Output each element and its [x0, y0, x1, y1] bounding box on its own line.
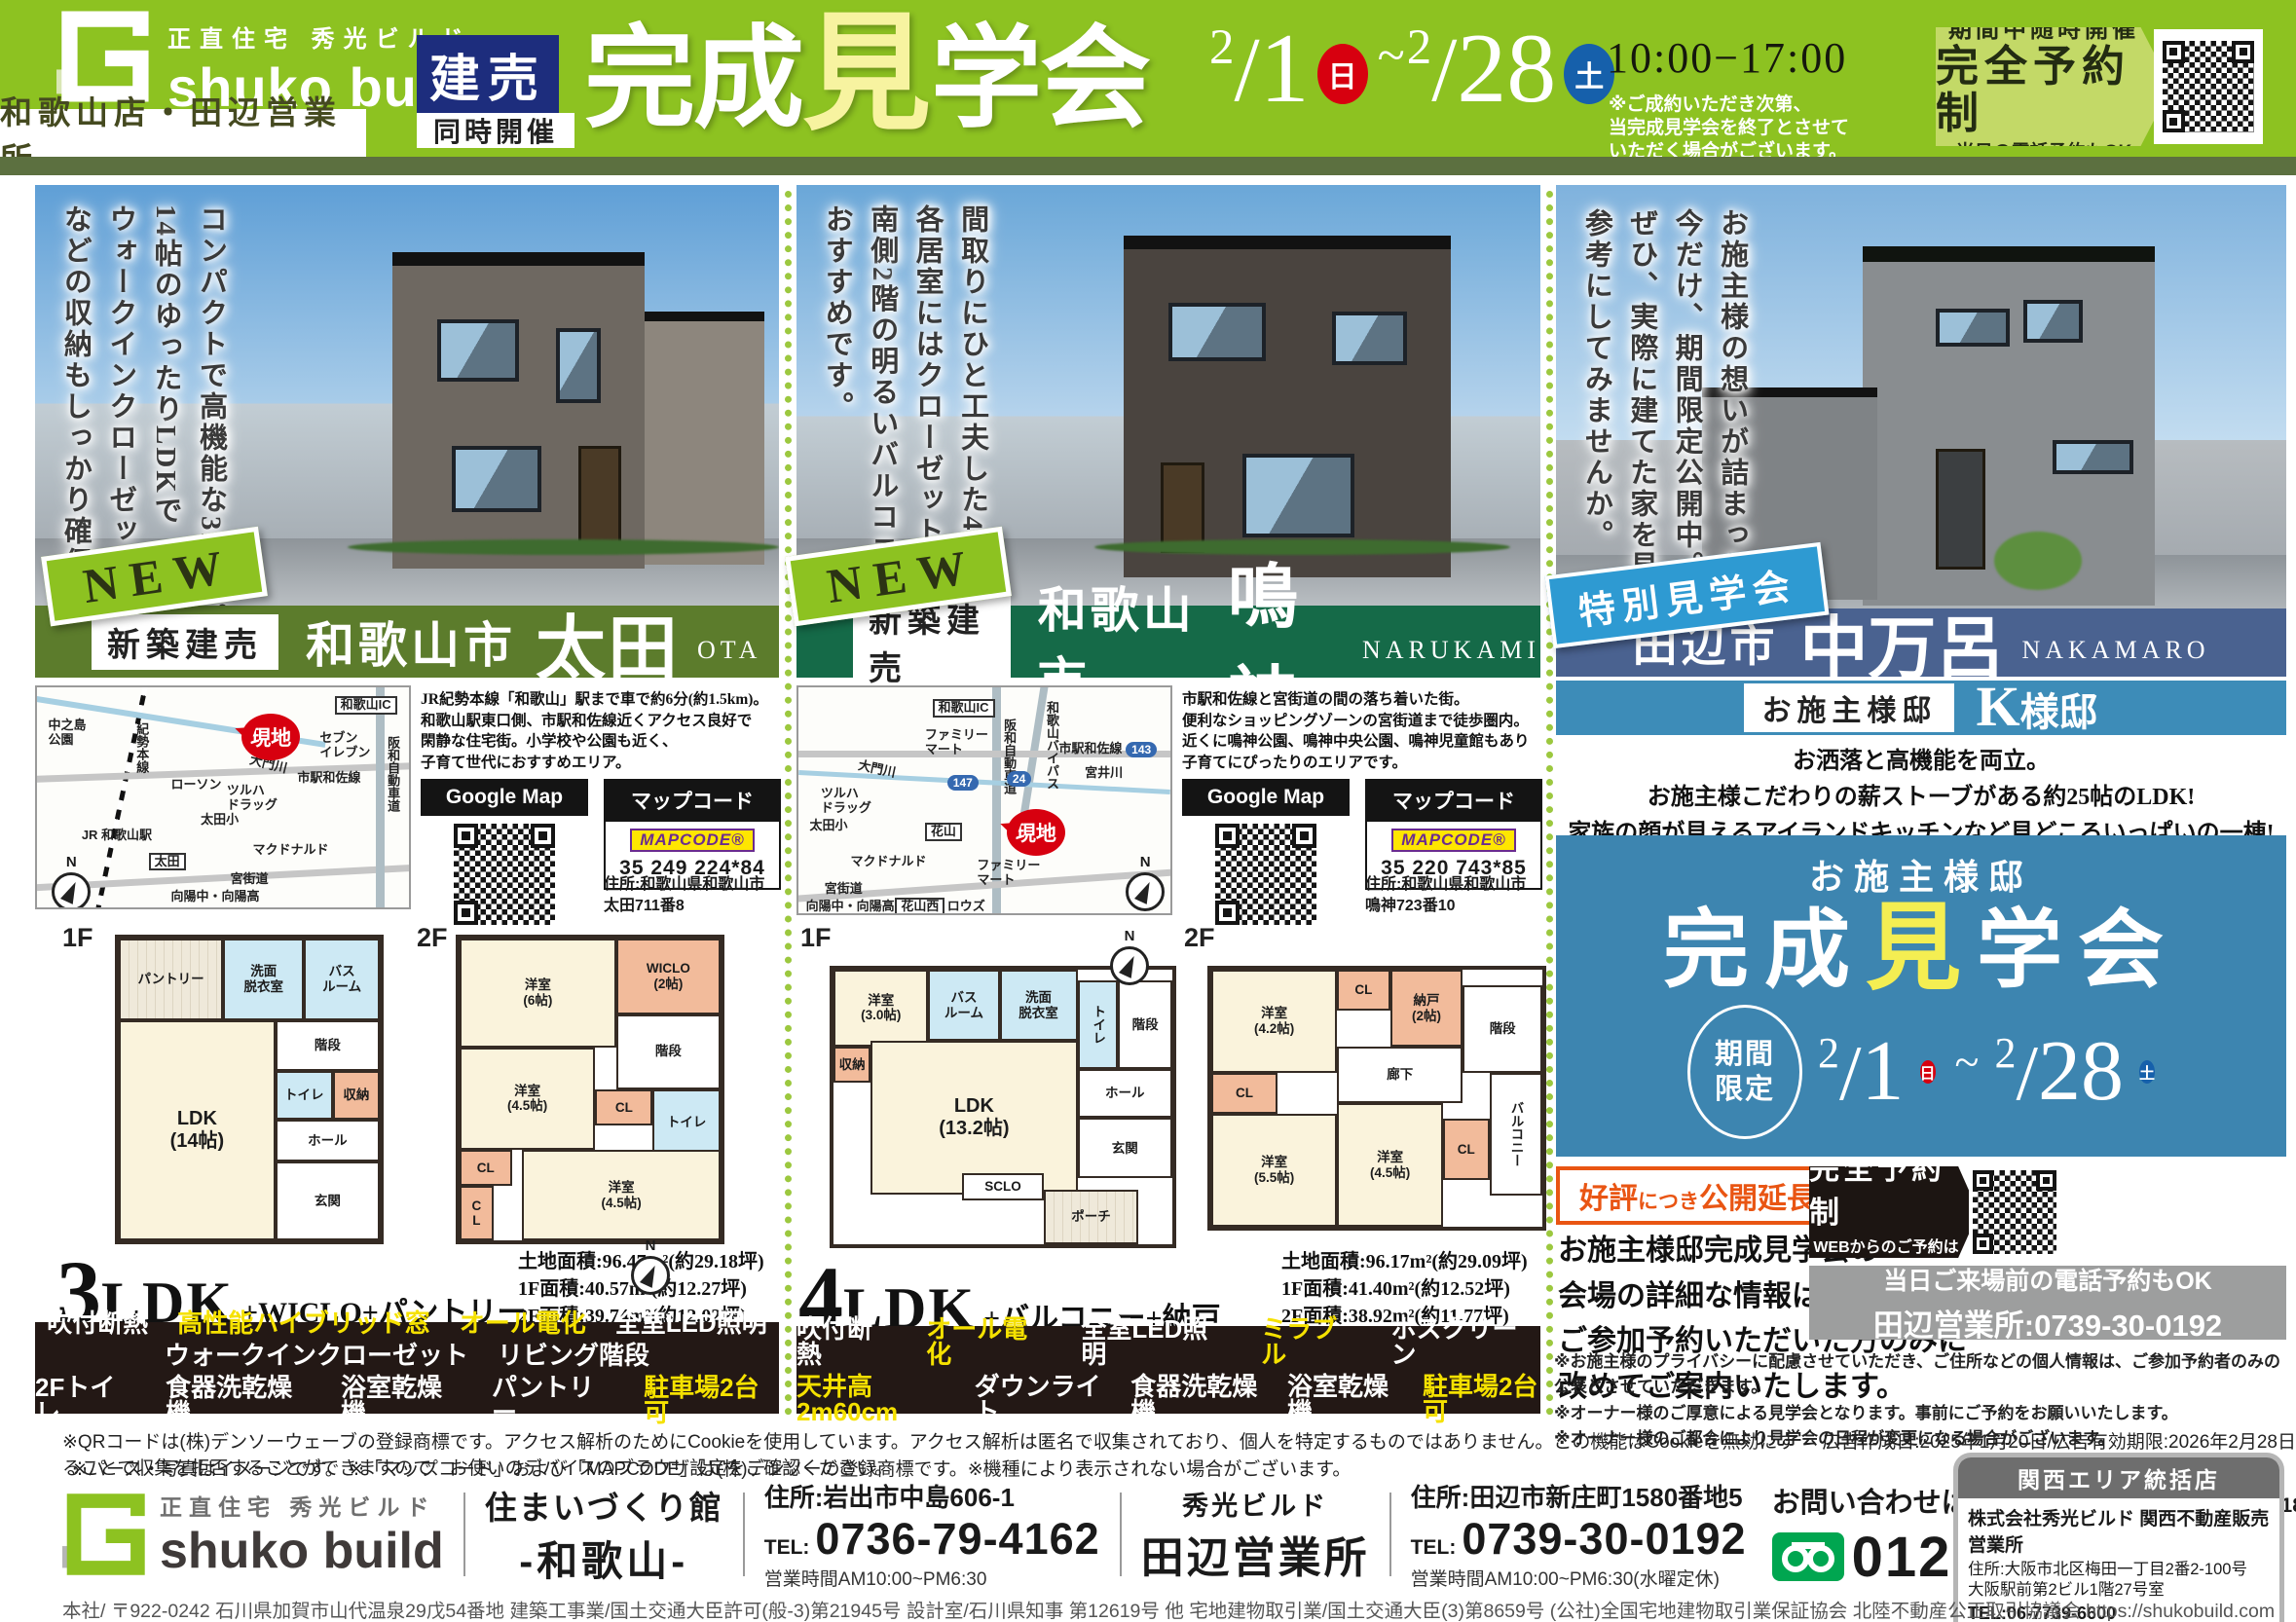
route-shield: 143 — [1126, 742, 1157, 757]
column-separator — [785, 191, 792, 1416]
room: 洗面 脱衣室 — [1000, 970, 1078, 1041]
room: バス ルーム — [304, 939, 380, 1020]
map-qr-code — [1182, 816, 1350, 925]
event-owner-label: お施主様邸 — [1809, 849, 2033, 900]
map-label: 紀勢本線 — [133, 722, 148, 773]
footer-divider — [1389, 1493, 1391, 1576]
access-description-ota: JR紀勢本線「和歌山」駅まで車で約6分(約1.5km)。 和歌山駅東口側、市駅和… — [421, 689, 781, 774]
floor-label-2f: 2F — [1184, 923, 1215, 953]
map-label: ツルハ ドラッグ — [821, 787, 871, 816]
brand-name-text: shuko build — [160, 1522, 444, 1580]
route-shield: 24 — [1007, 771, 1031, 787]
event-title: 完成見学会 — [1663, 902, 2179, 997]
panel-title-bar-narukami: 新築建売 和歌山市 鳴神 NARUKAMI — [796, 606, 1540, 678]
reserve-line2: 完全予約制 — [1936, 44, 2152, 138]
compass-icon: N — [631, 1256, 670, 1295]
mapcode-brand: MAPCODE® — [1391, 829, 1515, 852]
room: 洋室 (4.5帖) — [460, 1048, 595, 1150]
header-qr-code — [2154, 29, 2263, 144]
legal-line2: ※パース・写真はイメージです。 ※「マップコード」および「MAPCODE」は(株… — [72, 1455, 1351, 1481]
map-label: ファミリー マート — [925, 728, 988, 757]
date-from-month: 2 — [1818, 1032, 1839, 1075]
area-romaji: OTA — [697, 636, 761, 665]
floorplan-narukami-1f: 洋室 (3.0帖) バス ルーム 洗面 脱衣室 トイレ 階段 収納 収納 LDK… — [830, 966, 1176, 1248]
tanabe-phone: 0739-30-0192 — [1462, 1514, 1746, 1565]
wakayama-address: 住所:岩出市中島606-1 — [764, 1478, 1100, 1514]
site-address-ota: 住所:和歌山県和歌山市 太田711番8 — [604, 874, 764, 916]
spec-item: オール電化 — [926, 1316, 1052, 1367]
map-label: マクドナルド — [253, 843, 329, 858]
event-dates: 2/1 日 ~ 2/28 土 — [1209, 27, 1618, 110]
room: トイレ — [276, 1071, 333, 1120]
footer-divider — [463, 1493, 465, 1576]
footer-bar: 正直住宅 秀光ビルド shuko build 住まいづくり館 -和歌山- 住所:… — [62, 1488, 1961, 1581]
footer-tanabe-office: 秀光ビルド 田辺営業所 — [1141, 1485, 1370, 1585]
date-to-weekday: 土 — [2139, 1060, 2155, 1084]
spec-item: ダウンライト — [975, 1374, 1102, 1424]
spec-item: ミラブル — [1261, 1316, 1361, 1367]
room: LDK (13.2帖) — [870, 1041, 1077, 1195]
hall-location: -和歌山- — [485, 1529, 723, 1588]
map-label: 市駅和佐線 — [1058, 742, 1122, 756]
spec-item: 天井高2m60cm — [796, 1374, 945, 1424]
date-from-month: 2 — [1209, 23, 1235, 73]
tanabe-office-name: 田辺営業所 — [1141, 1523, 1370, 1585]
route-shield: 147 — [947, 775, 979, 791]
map-label: 和歌山IC — [335, 696, 397, 715]
map-label: 阪和自動車道 — [385, 736, 399, 812]
owner-initial: K — [1976, 675, 2019, 738]
footer-brand-logo: 正直住宅 秀光ビルド shuko build — [62, 1489, 444, 1580]
mapcode-label: マップコード — [604, 779, 781, 822]
room: ホール — [1078, 1069, 1172, 1119]
area-name: 中万呂 — [1799, 594, 2004, 692]
map-label: 和歌山IC — [933, 699, 995, 718]
extend-part: 公開延長! — [1699, 1174, 1826, 1217]
map-qr-code — [421, 816, 588, 925]
spec-item: ホスクリーン — [1390, 1316, 1540, 1367]
area-romaji: NAKAMARO — [2021, 636, 2209, 665]
map-label: ファミリー マート — [977, 859, 1040, 888]
main-title: 完成見学会 — [584, 14, 1149, 135]
title-pre: 完成 — [584, 24, 802, 135]
sale-badge: 建売 — [417, 35, 559, 113]
mapcode-block: マップコード MAPCODE® 35 220 743*85 — [1365, 779, 1542, 890]
room: 洋室 (6帖) — [460, 939, 616, 1048]
floor-label-2f: 2F — [417, 923, 448, 953]
date-tilde: ~ — [1955, 1036, 1980, 1087]
footer-divider — [1120, 1493, 1122, 1576]
map-label: マクドナルド — [850, 855, 926, 869]
compass-icon: N — [52, 872, 91, 909]
title-mid: 見 — [1866, 902, 1977, 997]
map-label: 向陽中・向陽高 — [806, 900, 895, 914]
shuko-logo-icon — [62, 1493, 146, 1576]
footer-hall: 住まいづくり館 -和歌山- — [485, 1482, 723, 1588]
room: 洋室 (4.2帖) — [1211, 970, 1337, 1073]
floorplan-narukami-2f: 洋室 (4.2帖) CL 納戸 (2帖) 階段 CL 廊下 洋室 (5.5帖) … — [1207, 966, 1546, 1231]
extend-part: 好評 — [1579, 1174, 1638, 1217]
spec-item: 2Fトイレ — [35, 1375, 136, 1425]
map-label: 花山西 — [895, 898, 944, 915]
event-dates: 期間 限定 2/1 日 ~ 2/28 土 — [1687, 1005, 2155, 1139]
date-from-weekday: 日 — [1317, 44, 1368, 104]
house-photo-nakamaro: お施主様の想いが詰まった家。 今だけ、期間限定公開中。 ぜひ、実際に建てた家を見… — [1556, 185, 2286, 625]
owner-event-box: お施主様邸 完成見学会 期間 限定 2/1 日 ~ 2/28 土 10:00−1… — [1556, 835, 2286, 1157]
access-map-ota: 中之島 公園 紀勢本線 JR 和歌山駅 太田 ローソン ツルハ ドラッグ 太田小… — [35, 685, 411, 909]
site-marker: 現地 — [241, 714, 300, 760]
spec-item: 浴室乾燥機 — [341, 1375, 463, 1425]
company-registration-line: 本社/ 〒922-0242 石川県加賀市山代温泉29戊54番地 建築工事業/国土… — [62, 1595, 2275, 1622]
floor-label-1f: 1F — [800, 923, 832, 953]
map-label: 宮街道 — [825, 882, 863, 897]
title-pre: 完成 — [1663, 907, 1866, 997]
room: 洋室 (4.5帖) — [1337, 1103, 1443, 1227]
open-hours: 10:00−17:00 — [1607, 33, 1847, 83]
map-label: 和歌山バイパス — [1044, 701, 1058, 790]
room: トイレ — [652, 1089, 721, 1156]
compass-icon: N — [1126, 872, 1165, 911]
room: CL — [595, 1089, 652, 1125]
owner-suffix: 様邸 — [2020, 690, 2098, 734]
room: 玄関 — [276, 1161, 380, 1240]
spec-item: パントリー — [492, 1375, 614, 1425]
title-mid: 見 — [802, 14, 931, 135]
spec-item: 吹付断熱 — [796, 1316, 897, 1367]
access-map-narukami: 和歌山IC 阪和自動車道 和歌山バイパス ファミリー マート 市駅和佐線 143… — [796, 685, 1172, 915]
mapcode-label: マップコード — [1365, 779, 1542, 822]
room: 玄関 — [1078, 1118, 1172, 1178]
specs-box-ota: 吹付断熱 高性能ハイブリッド窓 オール電化 全室LED照明 ウォークインクローゼ… — [35, 1322, 779, 1414]
date-to-month: 2 — [1407, 23, 1432, 73]
room: CL — [1337, 970, 1389, 1011]
spec-item: 全室LED照明 — [1081, 1316, 1232, 1367]
map-label: 太田小 — [809, 819, 847, 833]
spec-item: 駐車場2台可 — [644, 1375, 779, 1425]
room: 洋室 (3.0帖) — [833, 970, 928, 1047]
specs-box-narukami: 吹付断熱 オール電化 全室LED照明 ミラブル ホスクリーン 天井高2m60cm… — [796, 1326, 1540, 1414]
spec-item: 吹付断熱 — [47, 1310, 148, 1336]
map-label: ローソン — [171, 778, 222, 793]
map-label: 向陽中・向陽高 — [171, 890, 260, 904]
room: ホール — [276, 1120, 380, 1161]
googlemap-label: Google Map — [1182, 779, 1350, 816]
footer-wakayama-contact: 住所:岩出市中島606-1 TEL:0736-79-4162 営業時間AM10:… — [764, 1478, 1100, 1591]
googlemap-block: Google Map — [1182, 779, 1350, 925]
access-description-narukami: 市駅和佐線と宮街道の間の落ち着いた街。 便利なショッピングゾーンの宮街道まで徒歩… — [1182, 689, 1542, 774]
map-label: ロウズ — [947, 900, 985, 914]
mapcode-brand: MAPCODE® — [630, 829, 754, 852]
map-label: 宮街道 — [231, 872, 269, 887]
room: 洋室 (5.5帖) — [1211, 1114, 1337, 1227]
spec-item: ウォークインクローゼット — [165, 1343, 468, 1368]
phone-reserve-box: 当日ご来場前の電話予約もOK 田辺営業所:0739-30-0192 — [1809, 1266, 2286, 1340]
googlemap-label: Google Map — [421, 779, 588, 816]
room: パントリー — [119, 939, 223, 1020]
phone-box-line2: 田辺営業所:0739-30-0192 — [1873, 1301, 2222, 1345]
flyer-page: 正直住宅 秀光ビルド shuko build 建売 同時開催 完成見学会 2/1… — [0, 0, 2296, 1622]
room: バス ルーム — [928, 970, 999, 1041]
map-label: 太田小 — [201, 813, 239, 828]
tanabe-brand: 秀光ビルド — [1141, 1485, 1370, 1523]
map-label: 市駅和佐線 — [297, 771, 360, 786]
catch-copy-nakamaro: お施主様の想いが詰まった家。 今だけ、期間限定公開中。 ぜひ、実際に建てた家を見… — [1574, 208, 1755, 608]
area-name: 太田 — [536, 591, 680, 693]
room: C L — [460, 1186, 494, 1240]
extend-part: につき — [1638, 1186, 1699, 1215]
compass-icon: N — [1110, 946, 1149, 985]
owner-label: お施主様邸 — [1744, 683, 1954, 732]
full-reservation-box: 完全予約制 WEBからのご予約は QRコードから — [1809, 1166, 1979, 1258]
spec-item: リビング階段 — [498, 1343, 649, 1368]
room: 廊下 — [1337, 1047, 1463, 1103]
reserve-line1: 期間中随時開催 — [1948, 10, 2139, 44]
header-divider-band — [0, 157, 2296, 175]
map-label: セブン イレブン — [319, 731, 370, 760]
map-label: 宮井川 — [1085, 766, 1123, 781]
map-label: ツルハ ドラッグ — [227, 784, 278, 813]
spec-item: 食器洗乾燥機 — [1130, 1374, 1258, 1424]
sub-badge: 同時開催 — [417, 113, 574, 148]
room: CL — [1443, 1119, 1490, 1180]
limited-period-badge: 期間 限定 — [1687, 1005, 1802, 1139]
branch-name: 和歌山店・田辺営業所 — [0, 109, 366, 157]
room: 洗面 脱衣室 — [223, 939, 304, 1020]
spec-item: 高性能ハイブリッド窓 — [177, 1310, 429, 1336]
map-label: JR 和歌山駅 — [82, 829, 152, 843]
brand-top-text: 正直住宅 秀光ビルド — [160, 1489, 444, 1522]
title-post: 学会 — [1977, 907, 2179, 997]
room: WICLO (2帖) — [616, 939, 721, 1014]
floorplan-ota-2f: 洋室 (6帖) WICLO (2帖) 階段 洋室 (4.5帖) CL トイレ C… — [456, 935, 724, 1244]
spec-item: 全室LED照明 — [615, 1310, 767, 1336]
spec-item: オール電化 — [460, 1310, 586, 1336]
phone-box-line1: 当日ご来場前の電話予約もOK — [1883, 1262, 2212, 1297]
date-from-day: 1 — [1260, 28, 1310, 110]
date-from-weekday: 日 — [1920, 1060, 1936, 1084]
map-label: 中之島 公園 — [48, 719, 86, 748]
floor-label-1f: 1F — [62, 923, 93, 953]
date-to-day: 28 — [1457, 28, 1556, 110]
tanabe-address: 住所:田辺市新庄町1580番地5 — [1411, 1478, 1747, 1514]
wakayama-phone: 0736-79-4162 — [815, 1514, 1099, 1565]
map-label: 太田 — [149, 853, 186, 871]
room: トイレ — [1078, 980, 1119, 1068]
freedial-icon — [1772, 1532, 1844, 1581]
tanabe-hours: 営業時間AM10:00~PM6:30(水曜定休) — [1411, 1565, 1747, 1591]
hall-name: 住まいづくり館 — [485, 1482, 723, 1529]
catch-copy-ota: コンパクトで高機能な3LDK。 14帖のゆったりLDKで ウォークインクローゼッ… — [53, 204, 234, 590]
kansai-company: 株式会社秀光ビルド 関西不動産販売営業所 — [1968, 1504, 2270, 1557]
kansai-title: 関西エリア統括店 — [1958, 1457, 2279, 1498]
room: 収納 — [833, 1047, 870, 1083]
column-separator — [1546, 191, 1553, 1416]
date-from-day: 1 — [1862, 1037, 1905, 1107]
room: LDK (14帖) — [119, 1020, 276, 1240]
city-name: 和歌山市 — [306, 607, 516, 677]
site-marker: 現地 — [1007, 809, 1065, 856]
map-label: 花山 — [925, 823, 962, 841]
room: 納戸 (2帖) — [1390, 970, 1463, 1047]
room: 収納 — [333, 1071, 380, 1120]
room: 階段 — [1118, 980, 1172, 1068]
footer-tanabe-contact: 住所:田辺市新庄町1580番地5 TEL:0739-30-0192 営業時間AM… — [1411, 1478, 1747, 1591]
room: 階段 — [616, 1014, 721, 1090]
site-address-narukami: 住所:和歌山県和歌山市 鳴神723番10 — [1365, 874, 1526, 916]
spec-item: 駐車場2台可 — [1423, 1374, 1540, 1424]
header-note: ※ご成約いただき次第、 当完成見学会を終了とさせて いただく場合がございます。 — [1609, 93, 1849, 163]
room: SCLO — [962, 1173, 1044, 1200]
tel-label: TEL: — [764, 1536, 810, 1560]
room: バルコニー — [1490, 1073, 1542, 1197]
mapcode-block: マップコード MAPCODE® 35 249 224*84 — [604, 779, 781, 890]
date-to-month: 2 — [1994, 1032, 2016, 1075]
area-romaji: NARUKAMI — [1362, 636, 1540, 665]
date-tilde: ~ — [1378, 27, 1405, 85]
room: CL — [460, 1150, 512, 1186]
reservation-banner: 期間中随時開催 完全予約制 当日の電話予約もOK — [1936, 27, 2171, 146]
extension-banner: 好評 につき 公開延長! — [1556, 1166, 1849, 1225]
floorplan-ota-1f: パントリー 洗面 脱衣室 バス ルーム 階段 トイレ 収納 ホール 玄関 LDK… — [115, 935, 384, 1244]
title-post: 学会 — [931, 24, 1149, 135]
date-to-day: 28 — [2038, 1037, 2124, 1107]
room: 階段 — [276, 1020, 380, 1072]
room: 階段 — [1463, 985, 1542, 1073]
panel-title-bar-ota: 新築建売 和歌山市 太田 OTA — [35, 606, 779, 678]
wakayama-hours: 営業時間AM10:00~PM6:30 — [764, 1565, 1100, 1591]
room: CL — [1211, 1073, 1278, 1114]
owner-house-bar: お施主様邸 K様邸 — [1556, 681, 2286, 735]
room: ポーチ — [1044, 1190, 1138, 1244]
new-build-label: 新築建売 — [92, 614, 278, 670]
web-reserve-qr-code — [1969, 1166, 2060, 1258]
room: 洋室 (4.5帖) — [522, 1150, 721, 1240]
tel-label: TEL: — [1411, 1536, 1457, 1560]
spec-item: 浴室乾燥機 — [1287, 1374, 1393, 1424]
googlemap-block: Google Map — [421, 779, 588, 925]
spec-item: 食器洗乾燥機 — [166, 1375, 312, 1425]
footer-divider — [743, 1493, 745, 1576]
